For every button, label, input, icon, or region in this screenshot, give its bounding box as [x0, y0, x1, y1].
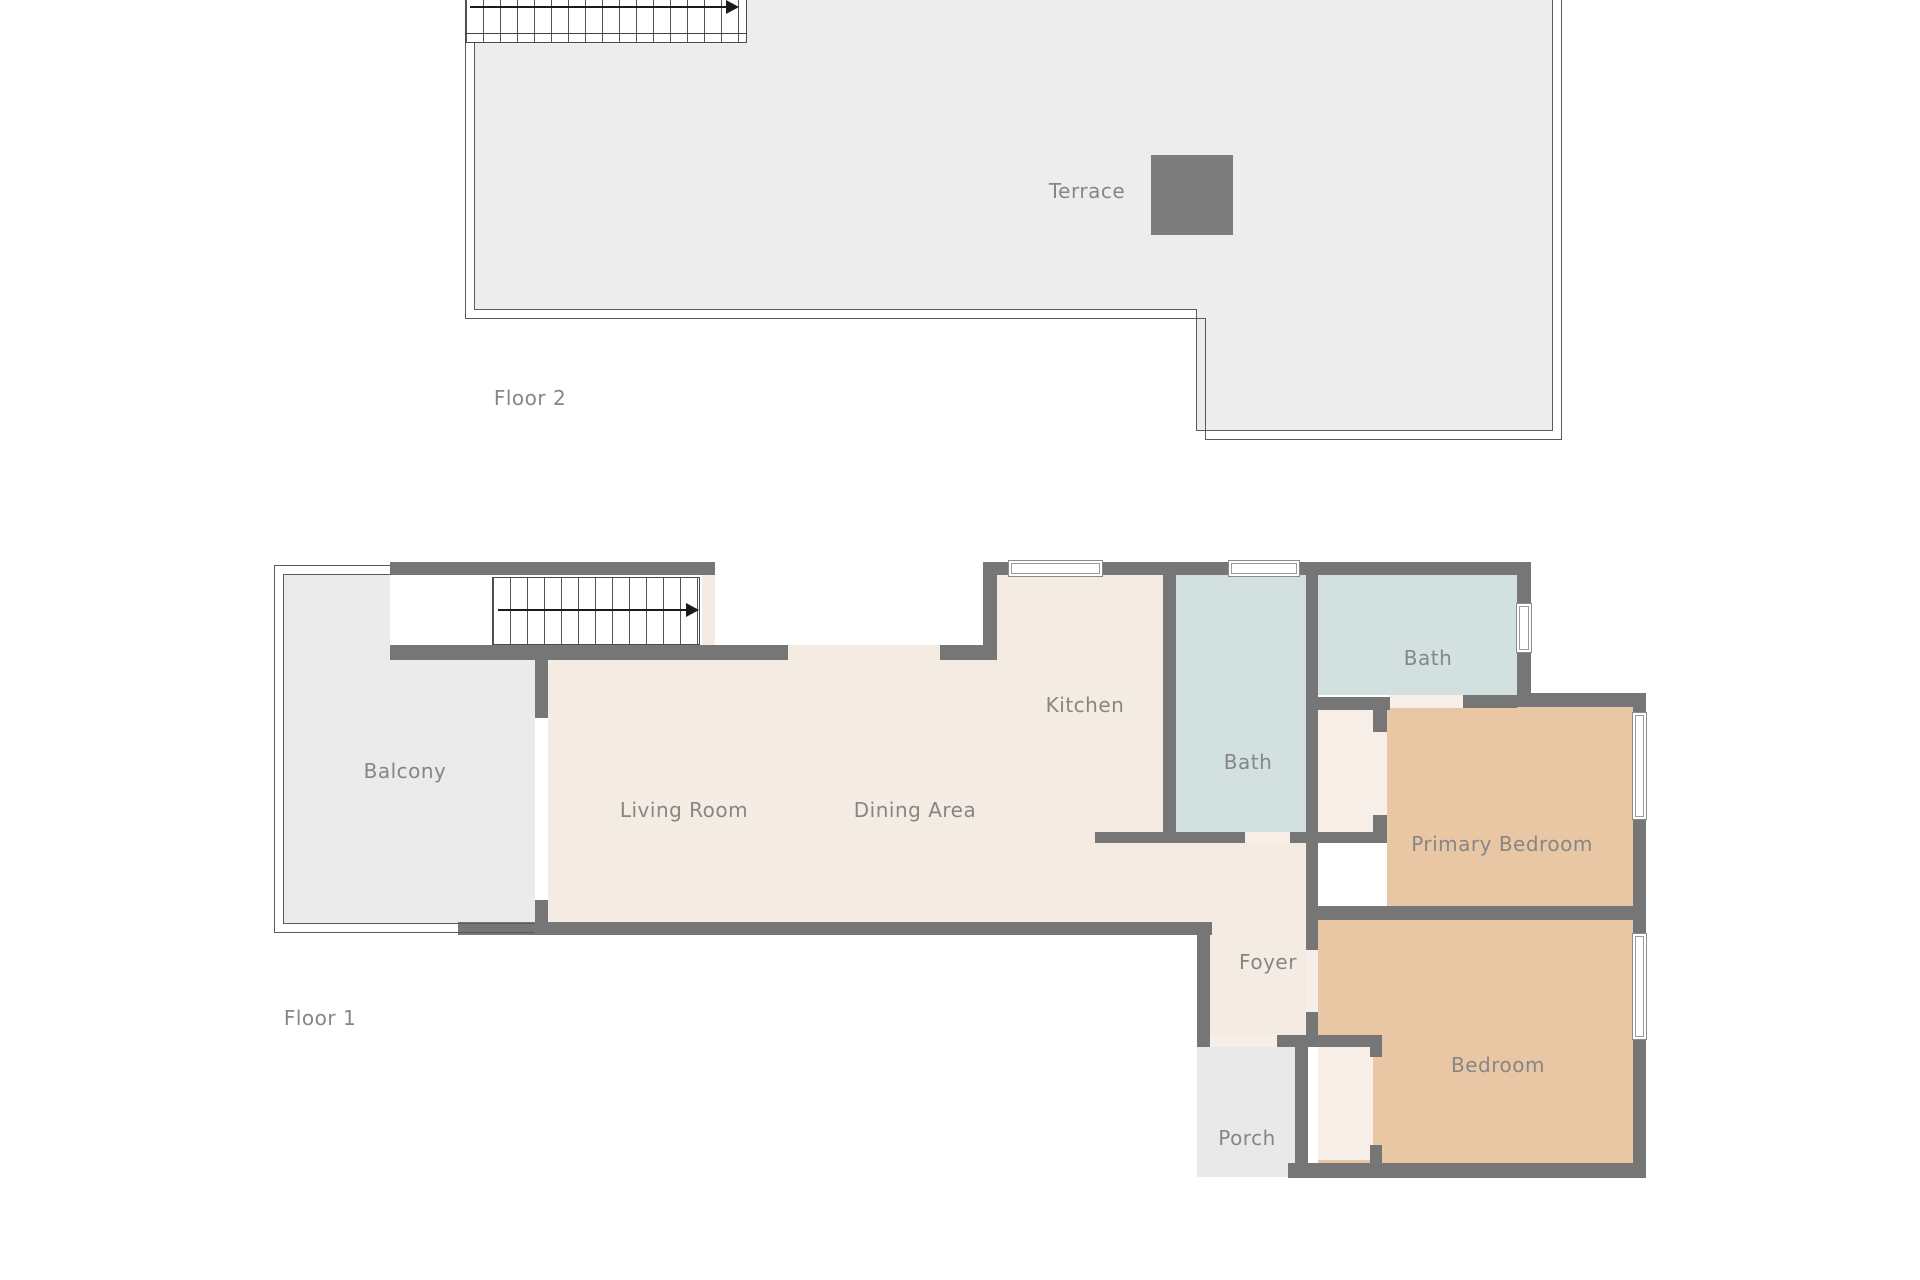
wall — [458, 922, 1212, 935]
stairs-direction-arrow-icon — [686, 603, 699, 617]
stairs-direction-arrow-icon — [470, 6, 726, 8]
bedroom-closet — [1318, 1047, 1373, 1160]
balcony-railing — [274, 932, 534, 933]
wall — [1306, 843, 1318, 950]
room-label-bath-ensuite: Bath — [1404, 646, 1453, 670]
wall — [983, 562, 997, 660]
stairs-direction-arrow-icon — [498, 609, 686, 611]
wall — [1288, 1035, 1380, 1047]
wall — [1373, 698, 1387, 732]
terrace-railing — [465, 0, 466, 319]
bath-window — [1228, 560, 1300, 577]
room-kitchen — [997, 575, 1163, 660]
kitchen-window — [1008, 560, 1103, 577]
terrace-railing — [1196, 430, 1553, 431]
wall — [1370, 1145, 1382, 1165]
floor-plan: Terrace Floor 2 — [0, 0, 1920, 1280]
terrace-railing — [1205, 439, 1562, 440]
door-opening — [1210, 1035, 1277, 1047]
room-label-bath-upper: Bath — [1224, 750, 1273, 774]
wall — [1306, 1012, 1318, 1035]
balcony-railing — [283, 574, 391, 575]
door-opening — [1245, 832, 1290, 843]
terrace-roof-hatch — [1151, 155, 1233, 235]
balcony-railing — [274, 565, 275, 933]
wall — [1318, 562, 1531, 575]
terrace-railing — [1196, 309, 1197, 431]
room-label-primary-bedroom: Primary Bedroom — [1411, 832, 1593, 856]
terrace-railing — [465, 318, 1206, 319]
primary-bedroom-window — [1632, 712, 1647, 820]
wall — [390, 562, 715, 575]
wall — [535, 900, 548, 922]
wall — [390, 645, 788, 660]
wall — [1095, 832, 1245, 843]
wall — [940, 645, 983, 660]
stairs-direction-arrow-icon — [726, 0, 739, 14]
balcony-railing — [283, 923, 534, 924]
terrace-railing — [1552, 0, 1553, 431]
door-opening — [1306, 950, 1318, 1012]
staircase-floor1 — [492, 577, 700, 645]
door-opening — [1373, 732, 1387, 815]
wall — [1295, 1035, 1308, 1177]
wall — [1517, 693, 1646, 707]
floor-label-floor1: Floor 1 — [284, 1006, 356, 1030]
room-label-balcony: Balcony — [364, 759, 447, 783]
wall — [1306, 562, 1318, 843]
room-terrace — [475, 0, 1552, 309]
terrace-railing — [474, 43, 475, 310]
wall — [1463, 695, 1517, 708]
wall — [1288, 1163, 1646, 1178]
stair-landing — [702, 575, 715, 645]
room-primary-bedroom — [1387, 707, 1633, 908]
staircase-floor2-cutline — [465, 33, 747, 34]
room-label-porch: Porch — [1218, 1126, 1276, 1150]
room-label-living: Living Room — [620, 798, 748, 822]
wall — [1373, 815, 1387, 843]
terrace-railing — [1561, 0, 1562, 440]
room-label-foyer: Foyer — [1239, 950, 1297, 974]
wall — [1163, 562, 1176, 843]
room-bath-ensuite — [1318, 573, 1517, 695]
wall — [535, 660, 548, 718]
hallway-strip — [1318, 710, 1373, 832]
wall — [1197, 922, 1210, 1047]
balcony-railing — [283, 574, 284, 924]
room-foyer — [1210, 922, 1306, 1035]
room-label-bedroom: Bedroom — [1451, 1053, 1545, 1077]
room-bath-upper — [1176, 575, 1306, 832]
bedroom-window — [1632, 933, 1647, 1040]
wall — [1370, 1035, 1382, 1057]
room-label-terrace: Terrace — [1049, 179, 1125, 203]
room-terrace — [1196, 309, 1552, 431]
bath-ensuite-window — [1516, 603, 1532, 653]
door-opening — [1390, 695, 1463, 708]
floor-label-floor2: Floor 2 — [494, 386, 566, 410]
balcony-railing — [274, 565, 391, 566]
room-porch — [1197, 1047, 1295, 1177]
wall-opening — [788, 645, 940, 660]
room-label-kitchen: Kitchen — [1046, 693, 1125, 717]
terrace-railing — [1205, 318, 1206, 440]
room-label-dining: Dining Area — [854, 798, 976, 822]
terrace-railing — [474, 309, 1197, 310]
wall — [1308, 906, 1633, 920]
